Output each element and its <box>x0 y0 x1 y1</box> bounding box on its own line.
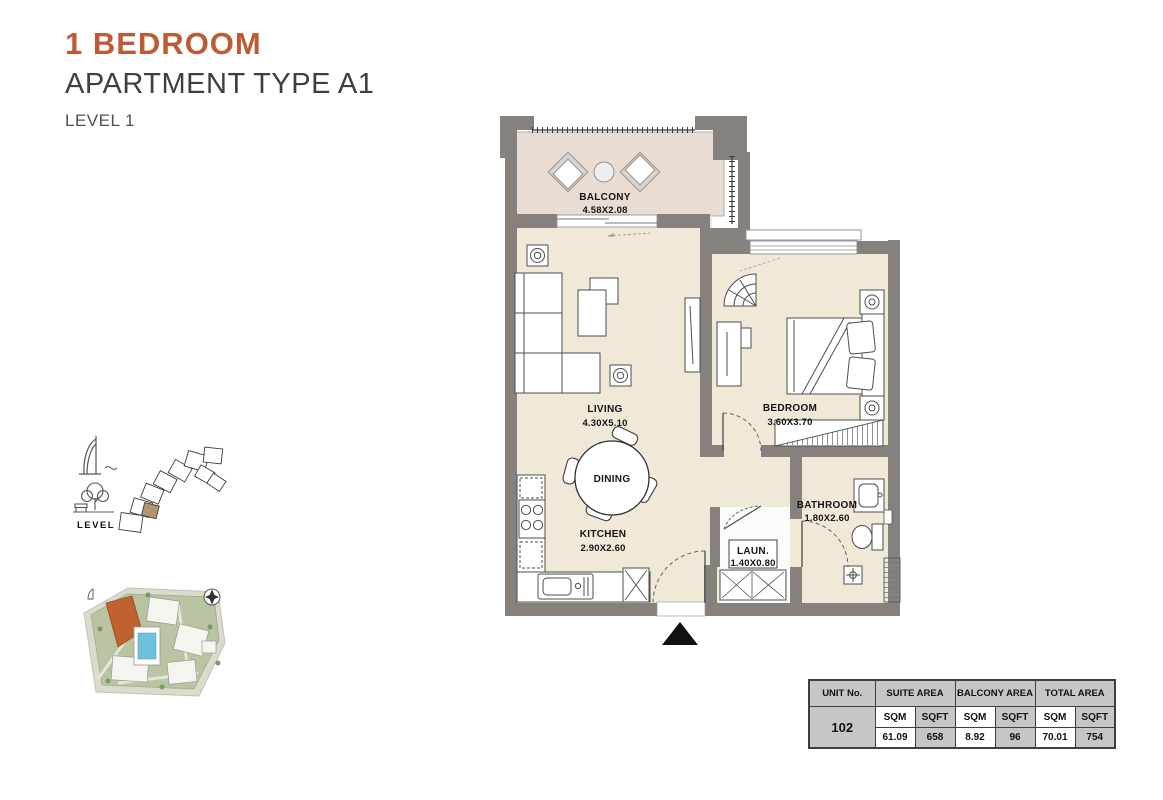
brochure-page: 1 BEDROOM APARTMENT TYPE A1 LEVEL 1 LEVE… <box>0 0 1163 800</box>
room-label-balcony: BALCONY <box>579 192 631 203</box>
total-sqm-header: SQM <box>1035 707 1075 728</box>
room-dim-living: 4.30X5.10 <box>582 418 627 429</box>
col-header-balcony: BALCONY AREA <box>955 680 1035 707</box>
site-plan-map <box>78 583 230 701</box>
room-label-kitchen: KITCHEN <box>580 529 627 540</box>
washing-machine <box>720 570 786 600</box>
pool <box>134 627 160 665</box>
room-label-bathroom: BATHROOM <box>797 500 858 511</box>
entry-threshold <box>657 602 705 616</box>
ceiling-spotlight <box>610 365 631 386</box>
unit-number: 102 <box>809 707 875 749</box>
toilet <box>852 524 883 550</box>
suite-sqft-header: SQFT <box>915 707 955 728</box>
kitchen-sink <box>538 574 593 599</box>
total-sqft-header: SQFT <box>1075 707 1115 728</box>
nightstand <box>860 396 884 420</box>
building-footprint <box>119 447 226 532</box>
area-table: UNIT No. SUITE AREA BALCONY AREA TOTAL A… <box>808 679 1116 749</box>
shaft-box <box>623 568 649 602</box>
room-dim-laundry: 1.40X0.80 <box>730 558 775 569</box>
shaft-niche <box>884 558 900 602</box>
suite-sqm-value: 61.09 <box>875 728 915 749</box>
tv-console <box>685 298 700 372</box>
room-label-laundry: LAUN. <box>737 546 769 557</box>
total-sqft-value: 754 <box>1075 728 1115 749</box>
shower-drain <box>844 566 862 584</box>
balcony-table <box>594 162 614 182</box>
balcony-floor <box>512 132 724 216</box>
total-sqm-value: 70.01 <box>1035 728 1075 749</box>
col-header-unit: UNIT No. <box>809 680 875 707</box>
page-title: 1 BEDROOM <box>65 26 262 62</box>
ceiling-spotlight <box>527 245 548 266</box>
compass-icon <box>204 589 220 605</box>
room-dim-bedroom: 3.60X3.70 <box>767 417 812 428</box>
site-burj-icon <box>88 589 93 599</box>
room-label-living: LIVING <box>587 404 622 415</box>
burj-al-arab-icon <box>79 436 117 474</box>
bed <box>787 314 884 398</box>
room-dim-kitchen: 2.90X2.60 <box>580 543 625 554</box>
room-label-dining: DINING <box>594 474 631 485</box>
suite-sqm-header: SQM <box>875 707 915 728</box>
page-level-label: LEVEL 1 <box>65 111 135 131</box>
room-dim-bathroom: 1.80X2.60 <box>804 513 849 524</box>
floor-plan: DINING <box>480 100 920 660</box>
suite-sqft-value: 658 <box>915 728 955 749</box>
nightstand <box>860 290 884 314</box>
balcony-sqft-header: SQFT <box>995 707 1035 728</box>
balcony-sqm-header: SQM <box>955 707 995 728</box>
col-header-suite: SUITE AREA <box>875 680 955 707</box>
tree-icon <box>73 483 114 512</box>
room-label-bedroom: BEDROOM <box>763 403 817 414</box>
level-locator-map: LEVEL 1 <box>70 428 265 543</box>
stove <box>519 500 545 538</box>
balcony-sqm-value: 8.92 <box>955 728 995 749</box>
room-dim-balcony: 4.58X2.08 <box>582 205 627 216</box>
page-subtitle: APARTMENT TYPE A1 <box>65 68 374 101</box>
bathroom-sink <box>854 479 884 512</box>
col-header-total: TOTAL AREA <box>1035 680 1115 707</box>
wall-niche <box>884 510 892 524</box>
entrance-arrow-icon <box>662 622 698 645</box>
balcony-sqft-value: 96 <box>995 728 1035 749</box>
